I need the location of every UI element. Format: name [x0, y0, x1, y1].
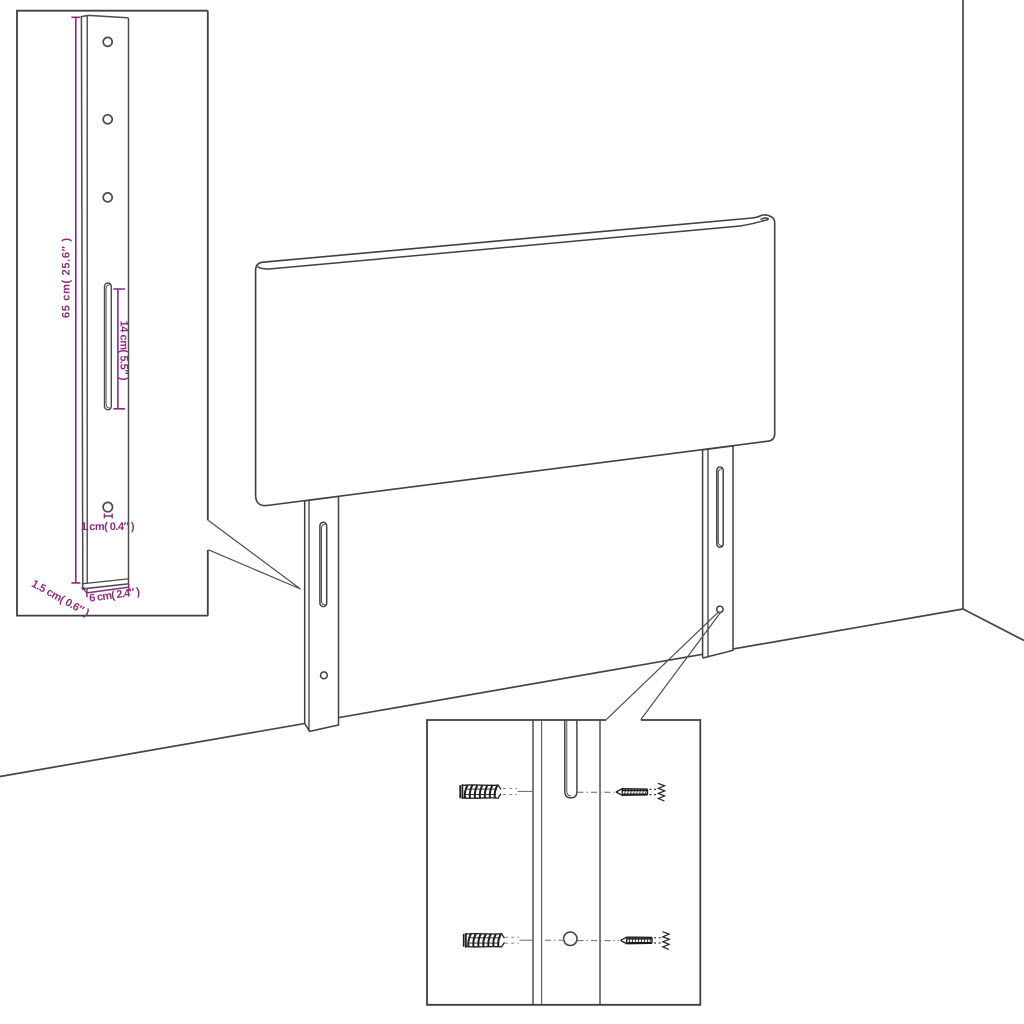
- svg-text:1 cm( 0.4″ ): 1 cm( 0.4″ ): [81, 521, 135, 533]
- svg-text:65 cm( 25.6″ ): 65 cm( 25.6″ ): [61, 238, 73, 318]
- svg-text:14 cm( 5.5″ ): 14 cm( 5.5″ ): [118, 321, 130, 381]
